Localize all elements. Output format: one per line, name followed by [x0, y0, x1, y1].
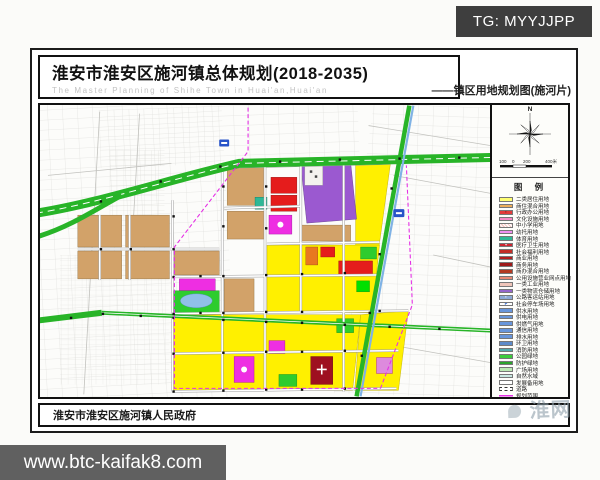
legend-swatch — [499, 256, 513, 261]
orange-block — [306, 247, 318, 265]
footer-bar: 淮安市淮安区施河镇人民政府 — [38, 403, 570, 427]
legend-swatch — [499, 387, 513, 392]
north-label: N — [492, 106, 568, 113]
legend-swatch — [499, 361, 513, 366]
legend-swatch — [499, 367, 513, 372]
url-box: www.btc-kaifak8.com — [0, 445, 226, 480]
legend-swatch — [499, 321, 513, 326]
scale-bar: 100 0 200 400米 — [492, 158, 566, 174]
planning-document: 淮安市淮安区施河镇总体规划(2018-2035) The Master Plan… — [30, 48, 578, 433]
legend-swatch — [499, 249, 513, 254]
legend-swatch — [499, 348, 513, 353]
legend-list: 二类居住用地商住混合用地▪行政办公用地文化设施用地中小学用地幼托用地体育用地+医… — [492, 195, 568, 399]
compass-section: N — [492, 105, 568, 178]
legend-swatch-glyph: P — [505, 302, 508, 306]
hospital-block — [311, 357, 333, 385]
legend-swatch: ▪ — [499, 210, 513, 215]
legend-swatch — [499, 262, 513, 267]
legend-swatch — [499, 328, 513, 333]
legend-swatch — [499, 236, 513, 241]
legend-swatch-glyph: + — [505, 243, 507, 247]
planning-map — [40, 105, 490, 397]
legend-swatch — [499, 197, 513, 202]
legend-swatch-glyph: ▪ — [505, 295, 506, 299]
scale-label-3: 400米 — [545, 158, 558, 165]
map-sheet-label: ——镇区用地规划图(施河片) — [432, 82, 571, 98]
pond — [180, 294, 212, 308]
government-label: 淮安市淮安区施河镇人民政府 — [53, 407, 196, 423]
legend-swatch — [499, 276, 513, 281]
map-area — [40, 105, 490, 397]
map-sidebar: N — [490, 105, 568, 397]
legend-swatch — [499, 308, 513, 313]
compass-rose-icon — [493, 112, 567, 158]
page-title: 淮安市淮安区施河镇总体规划(2018-2035) — [52, 60, 458, 84]
site-watermark: 淮网 — [508, 393, 573, 424]
legend-swatch — [499, 315, 513, 320]
legend-swatch — [499, 341, 513, 346]
scale-label-1: 0 — [512, 159, 515, 164]
legend-swatch — [499, 374, 513, 379]
scale-label-0: 100 — [499, 159, 507, 164]
legend-swatch — [499, 289, 513, 294]
scale-label-2: 200 — [523, 159, 531, 164]
legend-title: 图 例 — [492, 178, 568, 195]
legend-swatch-glyph: ▪ — [505, 210, 506, 214]
legend-swatch: + — [499, 243, 513, 248]
tg-watermark-box: TG: MYYJJPP — [456, 6, 592, 37]
photo-page: TG: MYYJJPP 淮安市淮安区施河镇总体规划(2018-2035) The… — [0, 0, 600, 480]
tg-watermark-label: TG: MYYJJPP — [473, 13, 575, 30]
url-label: www.btc-kaifak8.com — [24, 452, 202, 474]
legend-swatch — [499, 269, 513, 274]
legend-swatch — [499, 217, 513, 222]
legend-swatch — [499, 223, 513, 228]
legend-swatch: ▪ — [499, 295, 513, 300]
page-subtitle: The Master Planning of Shihe Town in Hua… — [52, 86, 458, 95]
legend-swatch: P — [499, 302, 513, 307]
legend-swatch — [499, 354, 513, 359]
map-frame: N — [38, 103, 570, 399]
legend-swatch — [499, 380, 513, 385]
site-watermark-label: 淮网 — [529, 399, 572, 422]
legend-swatch — [499, 334, 513, 339]
title-block: 淮安市淮安区施河镇总体规划(2018-2035) The Master Plan… — [38, 55, 460, 99]
legend-swatch — [499, 282, 513, 287]
legend-swatch — [499, 230, 513, 235]
warehouse-industry-block — [301, 162, 357, 223]
legend-swatch — [499, 204, 513, 209]
